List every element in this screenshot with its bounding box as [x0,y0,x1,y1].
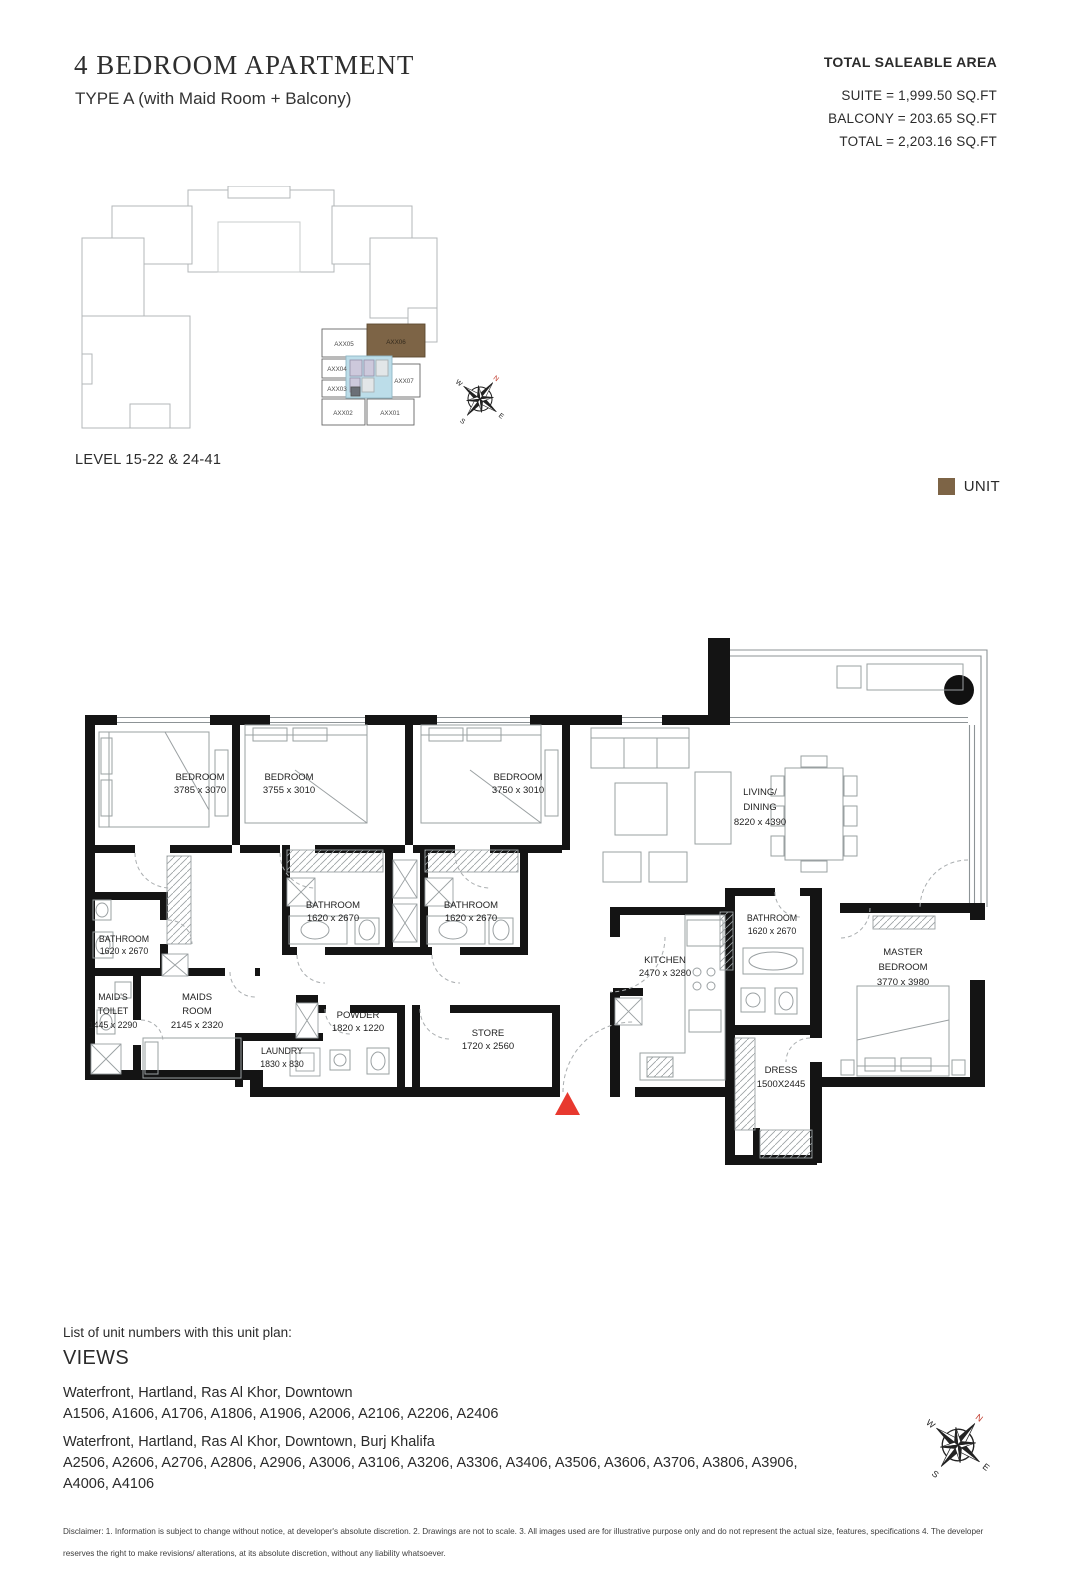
room-dims: 1620 x 2670 [445,913,497,924]
brochure-page: 4 BEDROOM APARTMENT TYPE A (with Maid Ro… [0,0,1074,1579]
room-name: LAUNDRY [261,1046,303,1056]
room-dims: 1620 x 2670 [307,913,359,924]
area-total: TOTAL = 2,203.16 SQ.FT [824,130,997,153]
room-dims: 1820 x 1220 [332,1023,384,1034]
key-plan-unit-label: AXX06 [386,339,406,346]
key-plan-unit-label: AXX05 [334,341,354,348]
room-name: BATHROOM [306,900,360,911]
compass-s-label: S [930,1468,941,1480]
room-dims: 2470 x 3280 [639,968,691,979]
unit-legend-label: UNIT [964,478,1000,495]
unit-legend-swatch [938,478,955,495]
room-name: BATHROOM [747,913,797,923]
room-name: BATHROOM [444,900,498,911]
room-dims: 1445 x 2290 [89,1020,138,1030]
page-title: 4 BEDROOM APARTMENT [74,50,414,81]
page-compass: N E S W [893,1378,1023,1508]
key-plan-unit-label: AXX03 [327,386,347,393]
room-label-bathroom-left: BATHROOM 1620 x 2670 [99,934,149,956]
room-dims: 8220 x 4390 [734,817,786,828]
furniture [93,664,965,1080]
views-group-units: A2506, A2606, A2706, A2806, A2906, A3006… [63,1453,803,1495]
room-label-bedroom-2: BEDROOM 3755 x 3010 [263,772,315,796]
room-dims: 1620 x 2670 [748,926,797,936]
unit-list-intro: List of unit numbers with this unit plan… [63,1325,292,1340]
room-name: BEDROOM [878,962,927,973]
room-label-bathroom-mid-b: BATHROOM 1620 x 2670 [444,900,498,924]
room-label-bathroom-master: BATHROOM 1620 x 2670 [747,913,797,936]
key-plan: AXX05 AXX06 AXX04 AXX03 AXX07 AXX02 AXX0… [68,186,528,444]
disclaimer-text: Disclaimer: 1. Information is subject to… [63,1521,1015,1565]
key-plan-unit-label: AXX04 [327,366,347,373]
views-group-views: Waterfront, Hartland, Ras Al Khor, Downt… [63,1432,803,1453]
unit-legend: UNIT [938,478,1000,495]
compass-icon: N E S W [437,358,522,443]
room-label-bedroom-1: BEDROOM 3785 x 3070 [174,772,226,796]
room-label-store: STORE 1720 x 2560 [462,1028,514,1052]
compass-w-label: W [454,379,464,389]
compass-e-label: E [497,412,505,421]
room-label-kitchen: KITCHEN 2470 x 3280 [639,955,691,979]
compass-n-label: N [974,1412,985,1424]
room-label-dress: DRESS 1500X2445 [757,1065,806,1090]
compass-n-label: N [492,375,500,384]
room-dims: 1830 x 830 [260,1059,304,1069]
room-name: KITCHEN [644,955,686,966]
compass-s-label: S [458,418,466,427]
compass-e-label: E [981,1461,992,1473]
key-plan-unit-label: AXX01 [380,410,400,417]
room-name: DRESS [765,1065,798,1076]
room-name: MASTER [883,947,923,958]
room-name: TOILET [98,1006,129,1016]
room-name: ROOM [182,1006,212,1017]
room-name: BEDROOM [493,772,542,783]
room-label-bedroom-3: BEDROOM 3750 x 3010 [492,772,544,796]
views-group-1: Waterfront, Hartland, Ras Al Khor, Downt… [63,1383,803,1425]
compass-icon: N E S W [902,1390,1013,1502]
compass-w-label: W [924,1417,937,1430]
room-name: LIVING/ [743,787,777,798]
views-group-units: A1506, A1606, A1706, A1806, A1906, A2006… [63,1404,803,1425]
room-name: STORE [472,1028,505,1039]
level-label: LEVEL 15-22 & 24-41 [75,452,221,468]
views-group-2: Waterfront, Hartland, Ras Al Khor, Downt… [63,1432,803,1495]
area-balcony: BALCONY = 203.65 SQ.FT [824,107,997,130]
room-name: BEDROOM [175,772,224,783]
area-summary: TOTAL SALEABLE AREA SUITE = 1,999.50 SQ.… [824,54,997,153]
room-dims: 3755 x 3010 [263,785,315,796]
area-summary-heading: TOTAL SALEABLE AREA [824,54,997,70]
room-name: MAID'S [98,992,128,1002]
views-group-views: Waterfront, Hartland, Ras Al Khor, Downt… [63,1383,803,1404]
room-name: BEDROOM [264,772,313,783]
page-subtitle: TYPE A (with Maid Room + Balcony) [75,89,351,109]
key-plan-unit-label: AXX02 [333,410,353,417]
room-label-powder: POWDER 1820 x 1220 [332,1010,384,1034]
room-dims: 2145 x 2320 [171,1020,223,1031]
room-dims: 1720 x 2560 [462,1041,514,1052]
room-dims: 3785 x 3070 [174,785,226,796]
room-name: POWDER [337,1010,380,1021]
area-suite: SUITE = 1,999.50 SQ.FT [824,84,997,107]
room-dims: 1500X2445 [757,1079,806,1090]
room-label-bathroom-mid-a: BATHROOM 1620 x 2670 [306,900,360,924]
views-heading: VIEWS [63,1347,129,1370]
room-label-master-bedroom: MASTER BEDROOM 3770 x 3980 [877,947,929,988]
room-label-maids-room: MAIDS ROOM 2145 x 2320 [171,992,223,1031]
room-name: BATHROOM [99,934,149,944]
floor-plan: BEDROOM 3785 x 3070 BEDROOM 3755 x 3010 … [75,620,995,1170]
room-dims: 3770 x 3980 [877,977,929,988]
room-dims: 1620 x 2670 [100,946,149,956]
room-dims: 3750 x 3010 [492,785,544,796]
key-plan-unit-label: AXX07 [394,378,414,385]
room-label-living-dining: LIVING/ DINING 8220 x 4390 [734,787,786,828]
room-name: MAIDS [182,992,212,1003]
room-name: DINING [743,802,776,813]
